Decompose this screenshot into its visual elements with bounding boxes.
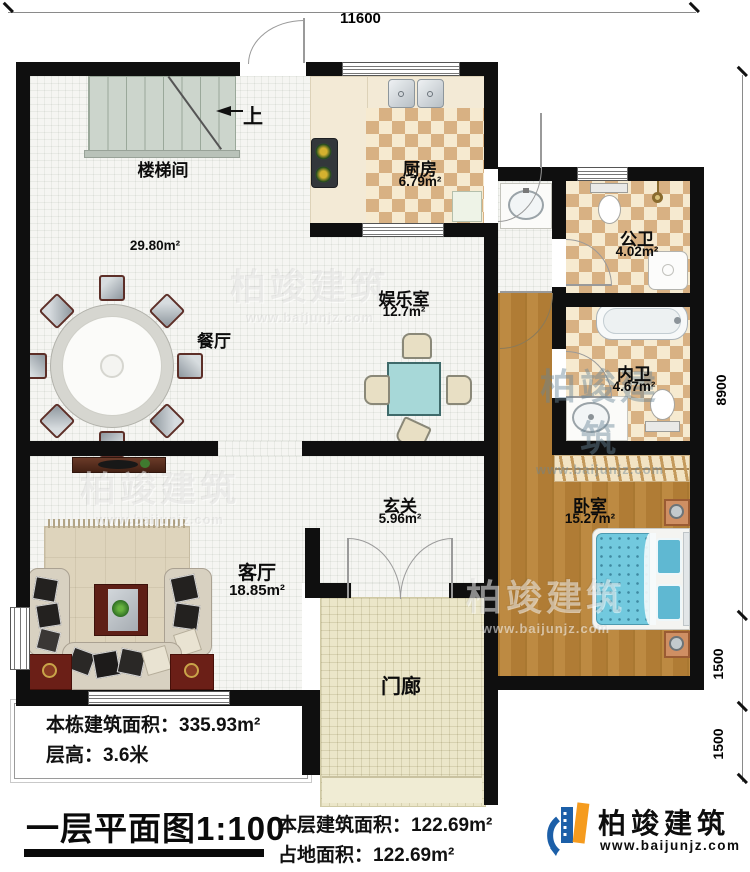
dimension-right-8900: 8900	[713, 374, 729, 405]
window	[342, 62, 460, 76]
dimension-top-label: 11600	[340, 10, 381, 27]
logo-swoosh-tail	[550, 848, 559, 856]
bed-mattress	[596, 533, 650, 625]
wall	[16, 62, 240, 76]
porch-step	[322, 776, 482, 803]
bed-headboard	[683, 532, 690, 626]
plant-icon	[140, 459, 150, 468]
room-area-inner-bath: 4.67m²	[613, 379, 656, 394]
logo-icon	[546, 798, 594, 860]
bed-pillow	[656, 538, 682, 575]
door-panel	[566, 284, 611, 286]
stairs-arrow-line	[230, 110, 243, 112]
wall	[690, 167, 704, 690]
sink-drain-icon	[588, 414, 594, 420]
game-chair	[402, 333, 432, 359]
logo-swoosh	[550, 819, 558, 852]
dining-chair	[177, 353, 203, 379]
floor-area-text: 本层建筑面积：122.69m²	[278, 810, 492, 837]
window	[88, 691, 230, 705]
shower-pipe	[657, 181, 659, 193]
toilet-tank	[645, 421, 680, 432]
room-label-living: 客厅	[238, 558, 276, 585]
door-panel	[566, 396, 611, 398]
room-area-bedroom: 15.27m²	[565, 511, 615, 526]
rug-fringe	[48, 519, 186, 528]
floor-passage	[218, 441, 302, 456]
footprint-text: 占地面积：122.69m²	[278, 840, 454, 867]
door-panel	[540, 113, 542, 168]
logo-tower-orange	[573, 802, 590, 843]
bathtub-inner	[603, 308, 681, 334]
toilet-bowl	[598, 195, 621, 224]
sink-drain-icon	[398, 91, 404, 97]
dimension-line-right	[742, 75, 743, 782]
room-area-kitchen: 6.79m²	[399, 174, 442, 189]
floor-plan: 11600 8900 1500 1500 上	[0, 0, 750, 872]
game-table	[387, 362, 441, 416]
hall-area-label: 29.80m²	[130, 238, 180, 253]
wall	[484, 62, 498, 169]
wall	[305, 583, 351, 598]
stove-burner-icon	[315, 166, 332, 183]
mat-medallion-icon	[42, 663, 57, 678]
title-underline	[24, 849, 264, 857]
lamp-icon	[669, 636, 684, 651]
building-logo-icon	[546, 798, 594, 860]
wall	[16, 441, 218, 456]
window	[577, 167, 628, 181]
sink-drain-icon	[427, 91, 433, 97]
mat-medallion-icon	[184, 663, 199, 678]
window	[10, 607, 30, 670]
room-label-porch: 门廊	[381, 670, 421, 699]
shower-drain-icon	[662, 264, 674, 276]
faucet-icon	[674, 317, 681, 324]
wall	[306, 62, 342, 76]
sofa-pillow	[172, 602, 200, 630]
room-area-living: 18.85m²	[229, 582, 285, 599]
bed-pillow	[656, 584, 682, 621]
wardrobe	[554, 455, 690, 482]
wall	[16, 62, 30, 607]
logo-tower-blue	[561, 807, 573, 843]
building-area-note: 本栋建筑面积：335.93m²	[46, 710, 260, 737]
sofa-pillow	[92, 650, 121, 679]
dining-chair	[99, 275, 125, 301]
dimension-right-1500a: 1500	[710, 648, 726, 679]
plan-title: 一层平面图1:100	[26, 802, 285, 850]
room-area-foyer: 5.96m²	[379, 511, 422, 526]
sofa-pillow	[32, 576, 59, 603]
stairs-up-arrow-icon	[216, 106, 231, 116]
stove-burner-icon	[315, 143, 332, 160]
toilet-tank	[590, 183, 628, 193]
wall	[552, 181, 566, 239]
logo-website: www.baijunjz.com	[600, 838, 741, 853]
plant-icon	[112, 600, 129, 617]
room-label-dining: 餐厅	[197, 327, 231, 352]
floor-height-note: 层高：3.6米	[46, 740, 148, 767]
sofa-pillow	[170, 574, 200, 604]
wall	[498, 676, 704, 690]
wall	[552, 398, 566, 441]
room-label-stairwell: 楼梯间	[138, 156, 189, 181]
lazy-susan	[100, 354, 124, 378]
room-area-game-room: 12.7m²	[383, 304, 426, 319]
door-arc	[248, 20, 304, 64]
wall	[302, 441, 498, 456]
shower-head-icon	[652, 192, 663, 203]
bed-sheet-fold	[644, 533, 656, 625]
tv	[98, 460, 138, 469]
window	[362, 223, 444, 237]
wall	[552, 441, 704, 455]
stairs-up-label: 上	[243, 100, 263, 129]
lamp-icon	[669, 504, 684, 519]
dimension-right-1500b: 1500	[710, 728, 726, 759]
wall	[552, 293, 704, 307]
wall	[449, 583, 498, 598]
wall	[484, 223, 498, 805]
game-chair	[446, 375, 472, 405]
fridge	[452, 191, 482, 222]
game-chair	[364, 375, 390, 405]
logo-name: 柏竣建筑	[598, 802, 730, 842]
room-area-public-bath: 4.02m²	[616, 244, 659, 259]
wall	[302, 690, 320, 775]
sofa-pillow	[35, 602, 61, 628]
